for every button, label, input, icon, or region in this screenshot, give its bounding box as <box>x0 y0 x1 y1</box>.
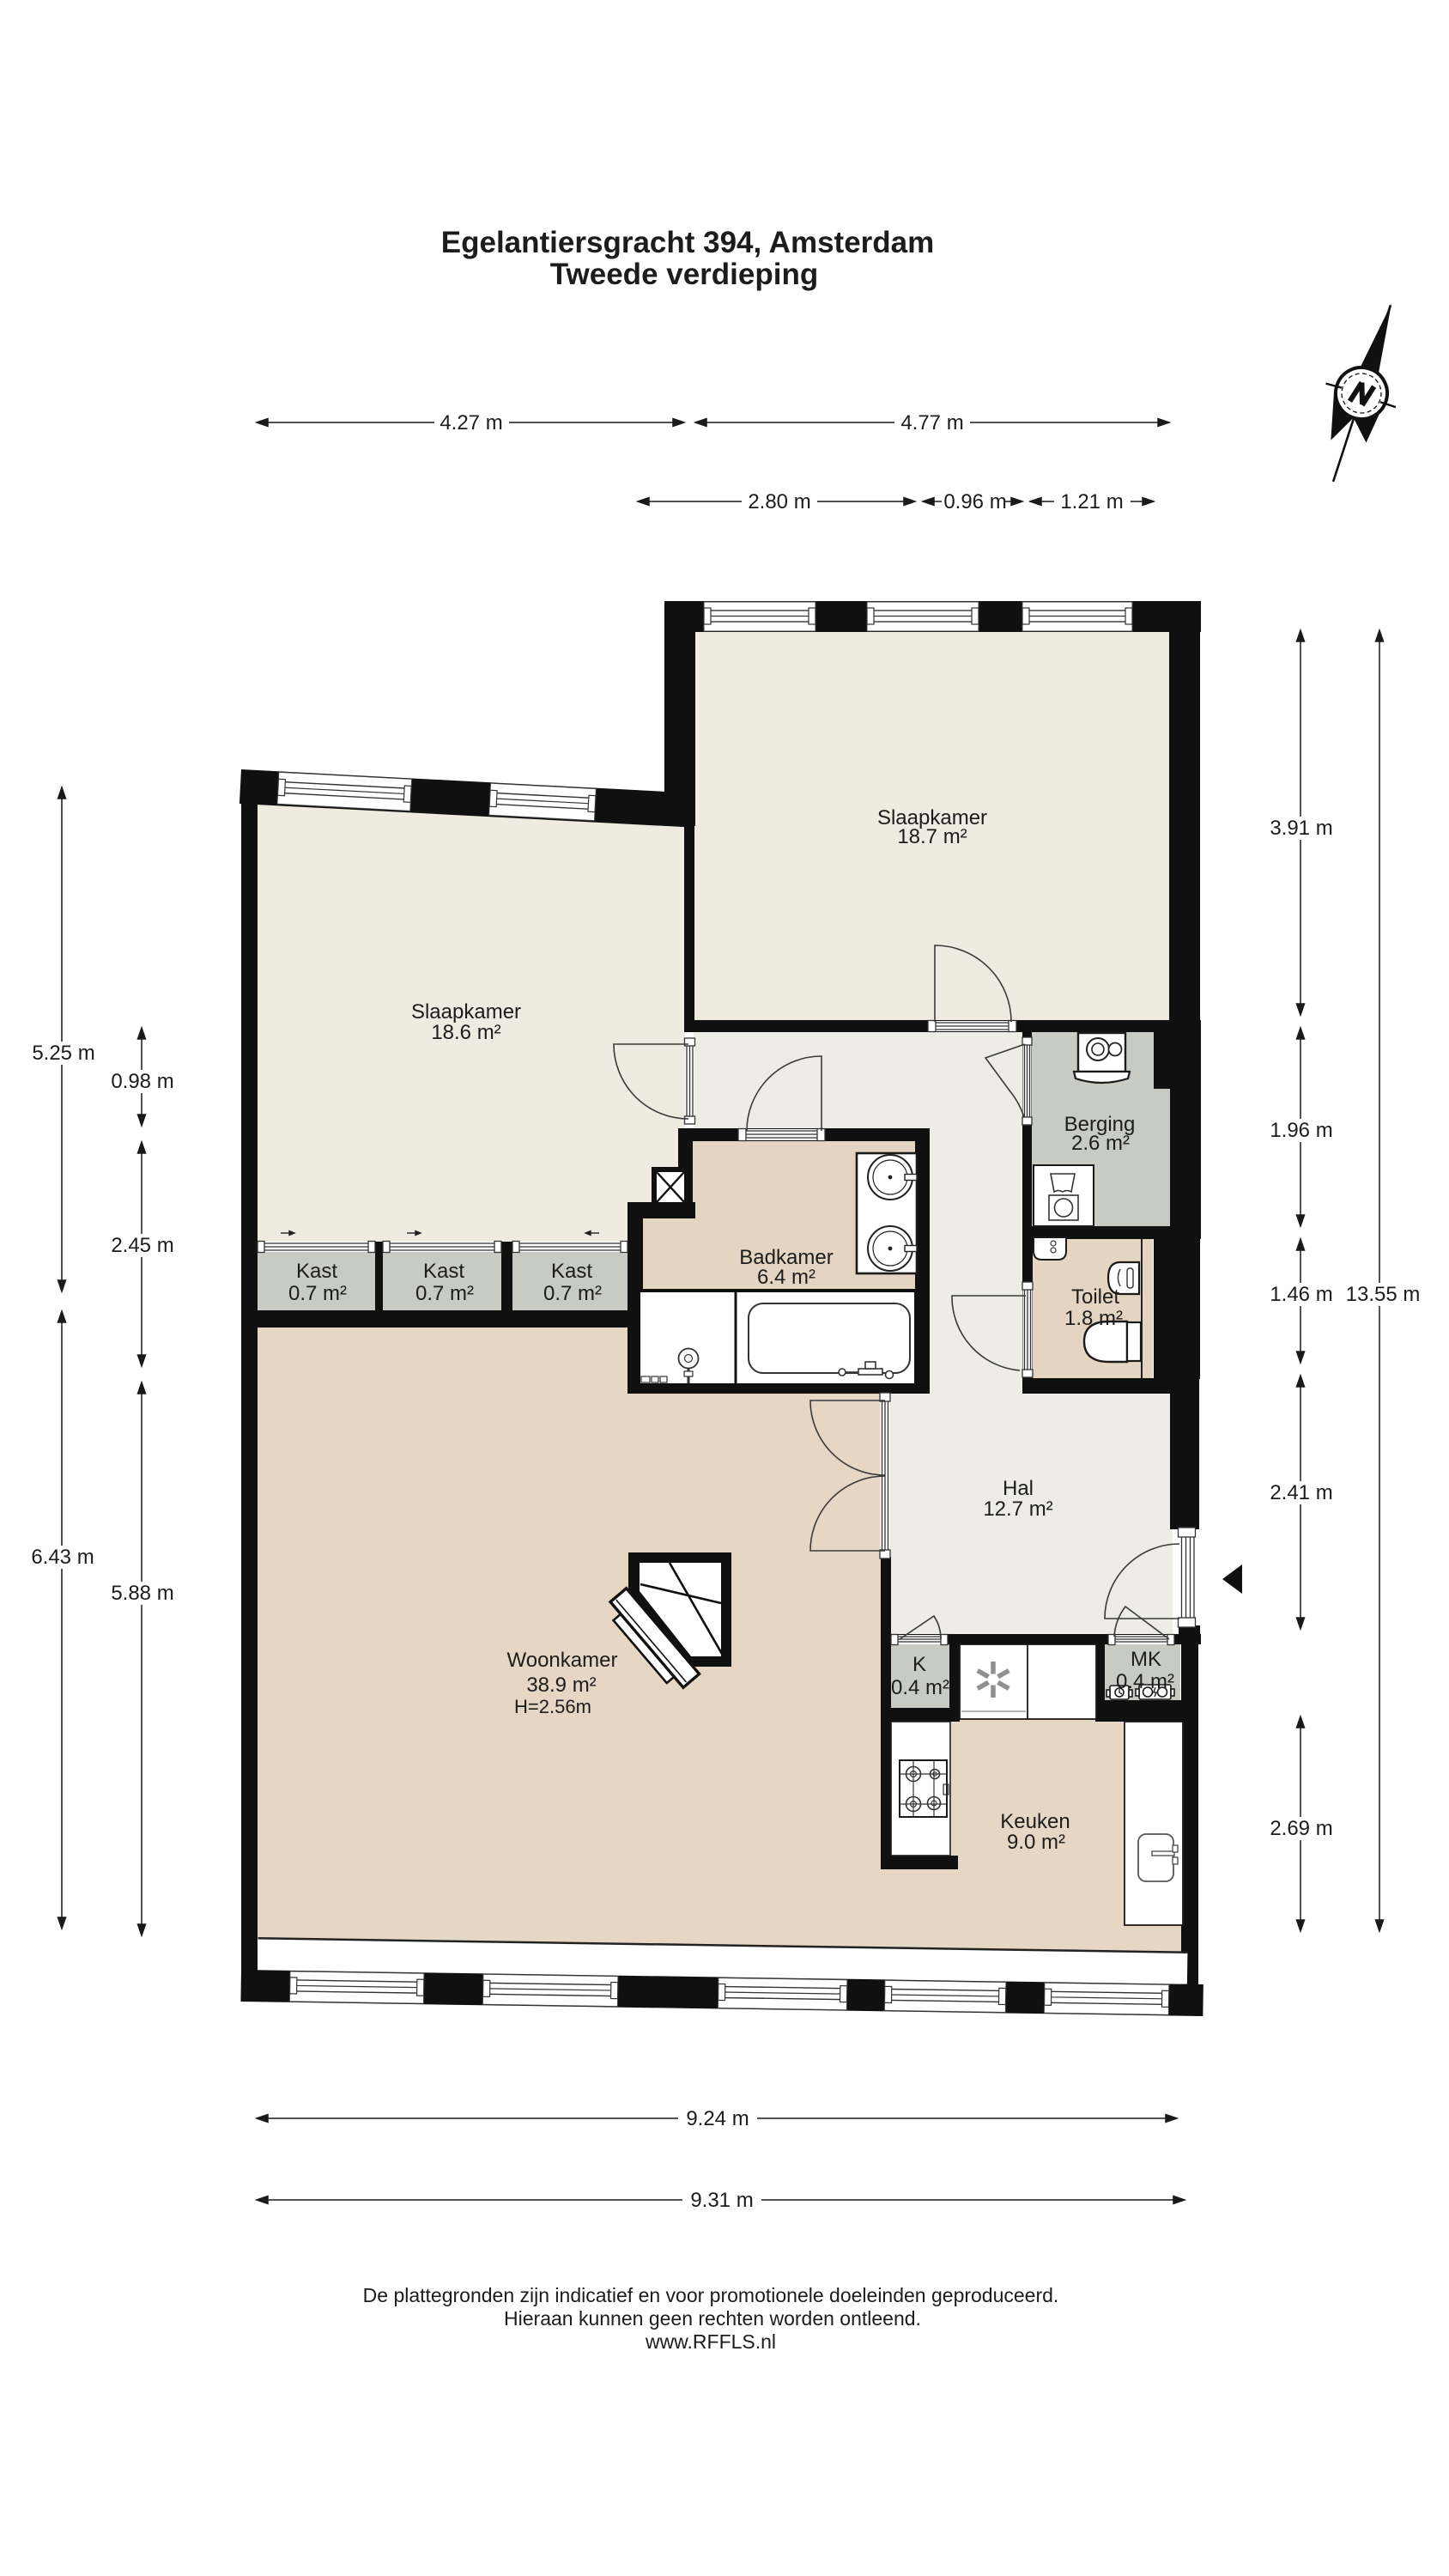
svg-text:9.24 m: 9.24 m <box>686 2107 749 2130</box>
svg-text:0.7 m²: 0.7 m² <box>415 1282 474 1305</box>
svg-text:Slaapkamer: Slaapkamer <box>411 1000 521 1024</box>
svg-text:Kast: Kast <box>551 1260 592 1283</box>
svg-text:Hal: Hal <box>1003 1477 1034 1500</box>
svg-text:1.96 m: 1.96 m <box>1270 1119 1332 1142</box>
svg-text:18.6 m²: 18.6 m² <box>431 1021 500 1044</box>
svg-text:MK: MK <box>1131 1648 1161 1671</box>
svg-text:6.4 m²: 6.4 m² <box>757 1266 815 1289</box>
svg-text:4.77 m: 4.77 m <box>900 411 963 434</box>
svg-text:0.98 m: 0.98 m <box>111 1070 173 1093</box>
svg-text:Kast: Kast <box>423 1260 464 1283</box>
svg-text:3.91 m: 3.91 m <box>1270 817 1332 840</box>
svg-text:18.7 m²: 18.7 m² <box>897 825 967 848</box>
svg-text:38.9 m²: 38.9 m² <box>526 1674 596 1697</box>
svg-text:H=2.56m: H=2.56m <box>514 1696 591 1717</box>
svg-text:Woonkamer: Woonkamer <box>507 1649 618 1672</box>
svg-text:De plattegronden zijn indicati: De plattegronden zijn indicatief en voor… <box>363 2284 1059 2306</box>
svg-text:Hieraan kunnen geen rechten wo: Hieraan kunnen geen rechten worden ontle… <box>504 2307 921 2330</box>
svg-text:2.80 m: 2.80 m <box>748 490 810 513</box>
svg-text:2.6 m²: 2.6 m² <box>1071 1132 1130 1155</box>
svg-text:13.55 m: 13.55 m <box>1346 1283 1421 1306</box>
svg-text:2.69 m: 2.69 m <box>1270 1817 1332 1840</box>
svg-text:0.4 m²: 0.4 m² <box>1116 1670 1174 1693</box>
svg-text:www.RFFLS.nl: www.RFFLS.nl <box>645 2330 776 2353</box>
svg-text:1.21 m: 1.21 m <box>1060 490 1123 513</box>
svg-text:5.25 m: 5.25 m <box>32 1042 94 1065</box>
svg-text:2.45 m: 2.45 m <box>111 1234 173 1257</box>
svg-text:1.46 m: 1.46 m <box>1270 1283 1332 1306</box>
svg-text:0.7 m²: 0.7 m² <box>543 1282 602 1305</box>
svg-text:12.7 m²: 12.7 m² <box>983 1498 1052 1521</box>
svg-text:Tweede verdieping: Tweede verdieping <box>550 258 819 291</box>
svg-text:0.96 m: 0.96 m <box>943 490 1006 513</box>
svg-text:9.31 m: 9.31 m <box>690 2189 753 2212</box>
svg-text:Toilet: Toilet <box>1071 1285 1119 1309</box>
svg-text:0.7 m²: 0.7 m² <box>288 1282 347 1305</box>
svg-text:0.4 m²: 0.4 m² <box>891 1676 949 1699</box>
svg-text:Egelantiersgracht 394, Amsterd: Egelantiersgracht 394, Amsterdam <box>441 226 935 259</box>
svg-text:K: K <box>912 1653 926 1676</box>
svg-text:2.41 m: 2.41 m <box>1270 1481 1332 1504</box>
svg-text:4.27 m: 4.27 m <box>440 411 502 434</box>
svg-text:5.88 m: 5.88 m <box>111 1582 173 1605</box>
svg-text:Keuken: Keuken <box>1000 1810 1070 1833</box>
svg-text:Kast: Kast <box>296 1260 337 1283</box>
svg-text:9.0 m²: 9.0 m² <box>1007 1831 1065 1854</box>
svg-text:1.8 m²: 1.8 m² <box>1064 1307 1123 1330</box>
svg-text:6.43 m: 6.43 m <box>31 1546 94 1569</box>
